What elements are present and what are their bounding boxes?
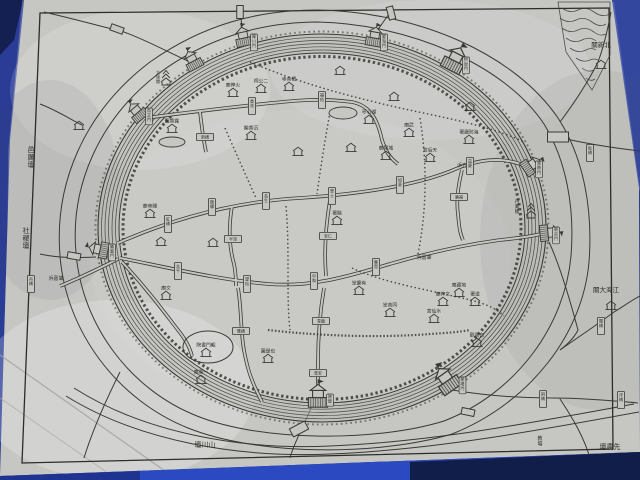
hall-youqingtang-label: 堂慶有 xyxy=(352,280,367,287)
label-xiannongtan: 壇農先 xyxy=(600,442,621,451)
label-danfenglou: 丹鳳樓 xyxy=(515,199,520,215)
bridge-plain-n1-deck xyxy=(237,6,244,19)
bridge-xinqiao-label: 新橋 xyxy=(201,134,209,140)
label-zhaojiabang-east-text: 浜嘉肇 xyxy=(416,254,431,261)
bridge-diaoqiao-w-label: 吊橋 xyxy=(29,276,33,286)
temple-dizangan-label: 庵藏地 xyxy=(452,282,467,289)
temple-baiyunguan-label: 觀雲白 xyxy=(470,332,485,339)
label-yilitan: 邑厲壇 xyxy=(28,146,35,169)
bridge-plain-n1 xyxy=(237,6,244,19)
bridge-puan-label: 普安 xyxy=(314,370,322,376)
bridge-xieqiao-se-label: 斜橋 xyxy=(541,390,545,401)
pond-west-water xyxy=(159,137,185,147)
gate-baodaimen-name: 寶帶門 xyxy=(537,161,541,175)
bridge-diaoqiao-w: 吊橋 xyxy=(27,276,34,293)
bridge-hongqiao-label: 虹橋 xyxy=(166,215,170,226)
bridge-xianghua-label: 香花 xyxy=(250,97,254,108)
gate-chaozongmen-name: 朝宗門 xyxy=(554,227,558,241)
gate-gongchenmen-name: 拱辰門 xyxy=(464,57,468,71)
bridge-guangfu: 廣福 xyxy=(451,193,468,200)
temple-yisuan-label: 庵粟一 xyxy=(194,369,209,376)
label-xiannongtan-text: 壇農先 xyxy=(600,442,621,451)
bridge-huiqiao-label: 匯橋 xyxy=(237,328,245,334)
bridge-guanyi-label: 館驛 xyxy=(210,198,214,209)
office-haifangting-label: 署廳防海 xyxy=(459,129,478,136)
bridge-anren: 安仁 xyxy=(320,232,337,239)
label-beixinguan: 關新北 xyxy=(591,40,611,49)
bridge-huiqiao: 匯橋 xyxy=(233,327,250,334)
bridge-jixian: 集賢 xyxy=(372,258,379,275)
gate-kualongmen-name: 跨龍 xyxy=(328,394,332,404)
bridge-fuqiao-se: 浮橋 xyxy=(617,391,624,408)
gate-shangwenmen-name: 尚文門 xyxy=(147,108,151,122)
label-yilitan-text: 邑厲壇 xyxy=(28,146,35,169)
label-beixinguan-text: 關新北 xyxy=(591,40,611,49)
temple-wenmiao-label: 廟文 xyxy=(161,285,171,292)
bridge-xueshi-label: 學士 xyxy=(330,187,334,198)
bridge-taiping-label: 太平 xyxy=(176,262,180,273)
garden-yeshiyuan-label: 園是也 xyxy=(261,348,276,355)
bridge-xieqiao-se: 斜橋 xyxy=(539,390,546,407)
bridge-changsheng: 長生 xyxy=(262,193,269,210)
shrine-ergongci-label: 祠公二 xyxy=(254,78,269,85)
label-shejitan-text: 社稷壇 xyxy=(23,226,30,250)
bridge-banqiao-ne-label: 板橋 xyxy=(588,144,592,155)
bridge-fuyou: 福佑 xyxy=(318,91,325,108)
gate-yifengmen-name: 儀鳳門 xyxy=(110,244,114,258)
gate-yanhaimen-name: 晏海門 xyxy=(382,34,386,48)
bridge-hongqiao: 虹橋 xyxy=(164,215,171,232)
bridge-zhonghe-label: 中和 xyxy=(312,272,316,283)
temple-chenghuangmiao-label: 廟隍城 xyxy=(379,145,394,152)
label-zhaojiabang-east: 浜嘉肇 xyxy=(416,254,431,261)
office-daoshu-label: 署道 xyxy=(470,291,480,298)
bridge-qinglong-label: 青龍 xyxy=(317,318,325,324)
label-fangbang-text: 浜方 xyxy=(457,162,467,169)
label-jiaochang: 教場 xyxy=(537,435,542,448)
bridge-ruyi: 如意 xyxy=(396,176,403,193)
temple-wumiao-label: 廟武 xyxy=(404,122,414,129)
garden-luxiangyuan-label: 園香露 xyxy=(165,118,180,125)
temple-guandimiao-label: 廟帝關 xyxy=(143,203,158,210)
gate-zhangchuanmen-name: 障川門 xyxy=(252,34,256,48)
gate-chaoyangmen-name: 朝陽門 xyxy=(461,377,465,391)
pond-west xyxy=(159,137,185,147)
pavilion-huxinting-label: 亭心湖 xyxy=(362,109,377,116)
office-xianshu-label: 署縣 xyxy=(332,210,342,217)
temple-jishansi-label: 寺善積 xyxy=(282,76,297,83)
bridge-jixian-label: 集賢 xyxy=(374,258,378,269)
bridge-guanqiao-e-label: 關橋 xyxy=(599,317,603,328)
bridge-yiqing-label: 益慶 xyxy=(468,157,472,168)
label-fangbang: 浜方 xyxy=(457,162,467,169)
label-zhaojiabang-west: 浜嘉肇 xyxy=(48,275,63,282)
bridge-xueshi: 學士 xyxy=(328,187,335,204)
temple-huoshenmiao-label: 廟神火 xyxy=(226,82,241,89)
pond-huxin xyxy=(329,107,357,119)
bridge-qinglong: 青龍 xyxy=(313,317,330,324)
label-jiaochang-text: 教場 xyxy=(537,435,542,448)
temple-chenxiangge-label: 閣香沉 xyxy=(244,125,259,132)
label-jianghaidaguan-text: 關大海江 xyxy=(593,285,620,294)
label-shejitan: 社稷壇 xyxy=(23,226,30,250)
map-photo-canvas: 邑厲壇社稷壇浜嘉肇關新北關大海江壇川山壇農先教場浜嘉肇浜方丹鳳樓廟神火祠公二寺善… xyxy=(0,0,640,480)
label-shanchuantan: 壇川山 xyxy=(195,440,216,449)
bridge-puan: 普安 xyxy=(310,369,327,376)
academy-longmenshuyuan-label: 院書門龍 xyxy=(196,342,215,349)
label-shanchuantan-text: 壇川山 xyxy=(195,440,216,449)
bridge-changsheng-label: 長生 xyxy=(264,193,268,203)
bridge-banjing-label: 半涇 xyxy=(229,236,237,242)
bridge-wangxian-label: 望仙 xyxy=(245,275,249,286)
label-jianghaidaguan: 關大海江 xyxy=(593,285,620,294)
bridge-banqiao-ne: 板橋 xyxy=(586,144,593,161)
bridge-fuyou-label: 福佑 xyxy=(320,91,324,102)
bridge-zhonghe: 中和 xyxy=(310,272,317,289)
pond-huxin-water xyxy=(329,107,357,119)
hall-tongshantang-label: 堂善同 xyxy=(383,302,398,309)
photo-of-historical-city-map: 邑厲壇社稷壇浜嘉肇關新北關大海江壇川山壇農先教場浜嘉肇浜方丹鳳樓廟神火祠公二寺善… xyxy=(0,0,640,480)
bridge-fuqiao-se-label: 浮橋 xyxy=(619,391,623,402)
bridge-guanyi: 館驛 xyxy=(208,198,215,215)
label-zhaojiabang-west-text: 浜嘉肇 xyxy=(48,275,63,282)
label-danfenglou-text: 丹鳳樓 xyxy=(515,199,520,215)
tower-dajingge-label: 大境閣 xyxy=(156,69,160,84)
bridge-banjing: 半涇 xyxy=(225,235,242,242)
bridge-anren-label: 安仁 xyxy=(324,233,332,239)
bridge-ruyi-label: 如意 xyxy=(398,176,402,187)
bridge-plain-ne-big-deck xyxy=(548,132,569,142)
bridge-plain-ne-big xyxy=(548,132,569,142)
bridge-wangxian: 望仙 xyxy=(243,275,250,292)
bridge-guanqiao-e: 關橋 xyxy=(597,317,604,334)
temple-wenshenmiao-label: 廟神文 xyxy=(436,291,451,298)
bridge-taiping: 太平 xyxy=(174,262,181,279)
temple-tianhougong-label: 宮后天 xyxy=(423,147,438,154)
bridge-xianghua: 香花 xyxy=(248,97,255,114)
bridge-yiqing: 益慶 xyxy=(466,157,473,174)
temple-shuixiangong-label: 宮仙水 xyxy=(427,308,442,315)
bridge-guangfu-label: 廣福 xyxy=(455,194,463,200)
bridge-xinqiao: 新橋 xyxy=(197,133,214,140)
